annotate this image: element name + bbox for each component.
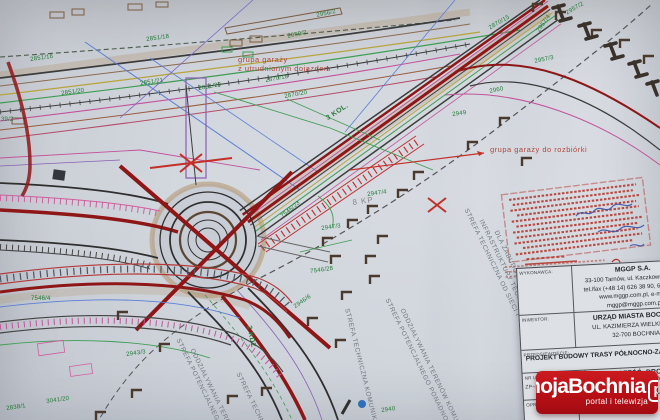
watermark-tld-badge: pl [648, 380, 658, 402]
parcel-label: 39/2 [1, 117, 13, 123]
title-block-investor-label: INWESTOR: [520, 313, 577, 350]
parcel-label: 7546/4 [31, 296, 51, 302]
watermark-brand: mojaBochnia [536, 375, 645, 399]
note-demolition: grupa garaży do rozbiórki [490, 146, 587, 154]
title-block-investor: URZĄD MIASTA BOCHNIA UL. KAZIMIERZA WIEL… [574, 307, 660, 347]
note-garages-line2: z utrudnionym dojazdem [238, 65, 331, 73]
note-garages-line1: grupa garaży [238, 56, 288, 64]
plan-photo: grupa garaży z utrudnionym dojazdem grup… [0, 0, 660, 420]
title-block-contractor-label: WYKONAWCA: [517, 266, 574, 315]
watermark-mojabochnia: mojaBochnia pl portal i telewizja [536, 371, 658, 414]
title-block-contractor: MGGP S.A. 33-100 Tarnów, ul. Kaczkowskie… [572, 260, 660, 312]
